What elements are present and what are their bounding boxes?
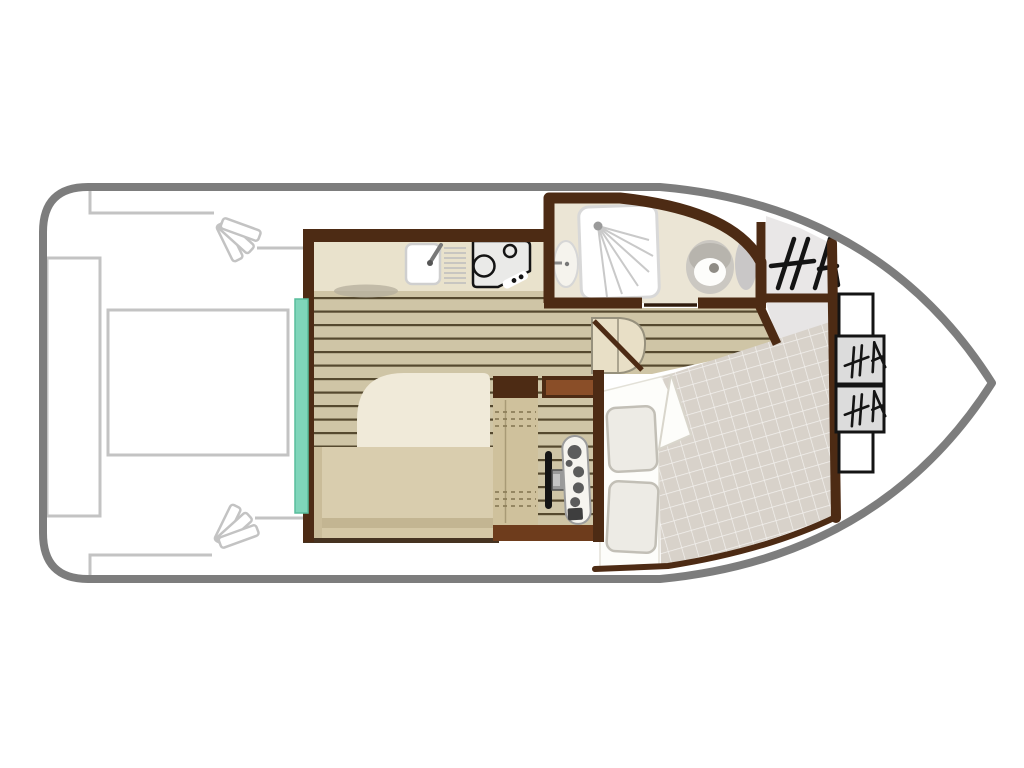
aft-rail-top <box>90 191 214 213</box>
bow-storage-boxes <box>836 294 886 472</box>
boat-floor-plan <box>0 0 1024 768</box>
throttle-console <box>562 435 592 524</box>
pillow-top <box>606 406 657 472</box>
aft-deck <box>47 191 303 577</box>
bathroom <box>546 196 761 303</box>
floor-plan-svg <box>0 0 1024 768</box>
stern-bench <box>47 258 100 516</box>
sink-drain <box>427 260 433 266</box>
wheel-hub-inner <box>553 474 560 486</box>
companionway-steps <box>592 318 645 373</box>
galley-sink <box>406 244 440 284</box>
helm-locker-door <box>546 380 594 395</box>
helm-base-cabinet <box>493 525 600 541</box>
steering-wheel <box>545 451 552 509</box>
shower-head-icon <box>594 222 603 231</box>
saloon-front-wall <box>303 229 545 242</box>
sliding-door <box>295 299 308 513</box>
console-switch <box>567 508 583 521</box>
counter-shadow <box>334 285 398 298</box>
helm-locker-left <box>493 376 538 398</box>
deck-table <box>108 310 288 455</box>
dinette-bench-back <box>307 518 493 528</box>
dinette-table <box>357 373 490 455</box>
bench-edge-line <box>303 538 499 543</box>
boarding-steps-bottom-icon <box>214 504 259 549</box>
helm-cabin-wall <box>593 370 604 542</box>
boarding-steps-top-icon <box>216 218 261 263</box>
dinette-bench-cushion <box>307 447 493 518</box>
pillow-bottom <box>606 481 659 553</box>
toilet-bowl <box>694 258 726 286</box>
basin-drain <box>565 262 569 266</box>
toilet-flush <box>709 263 719 273</box>
aft-rail-bottom <box>90 555 212 577</box>
helm-seat <box>493 398 538 525</box>
